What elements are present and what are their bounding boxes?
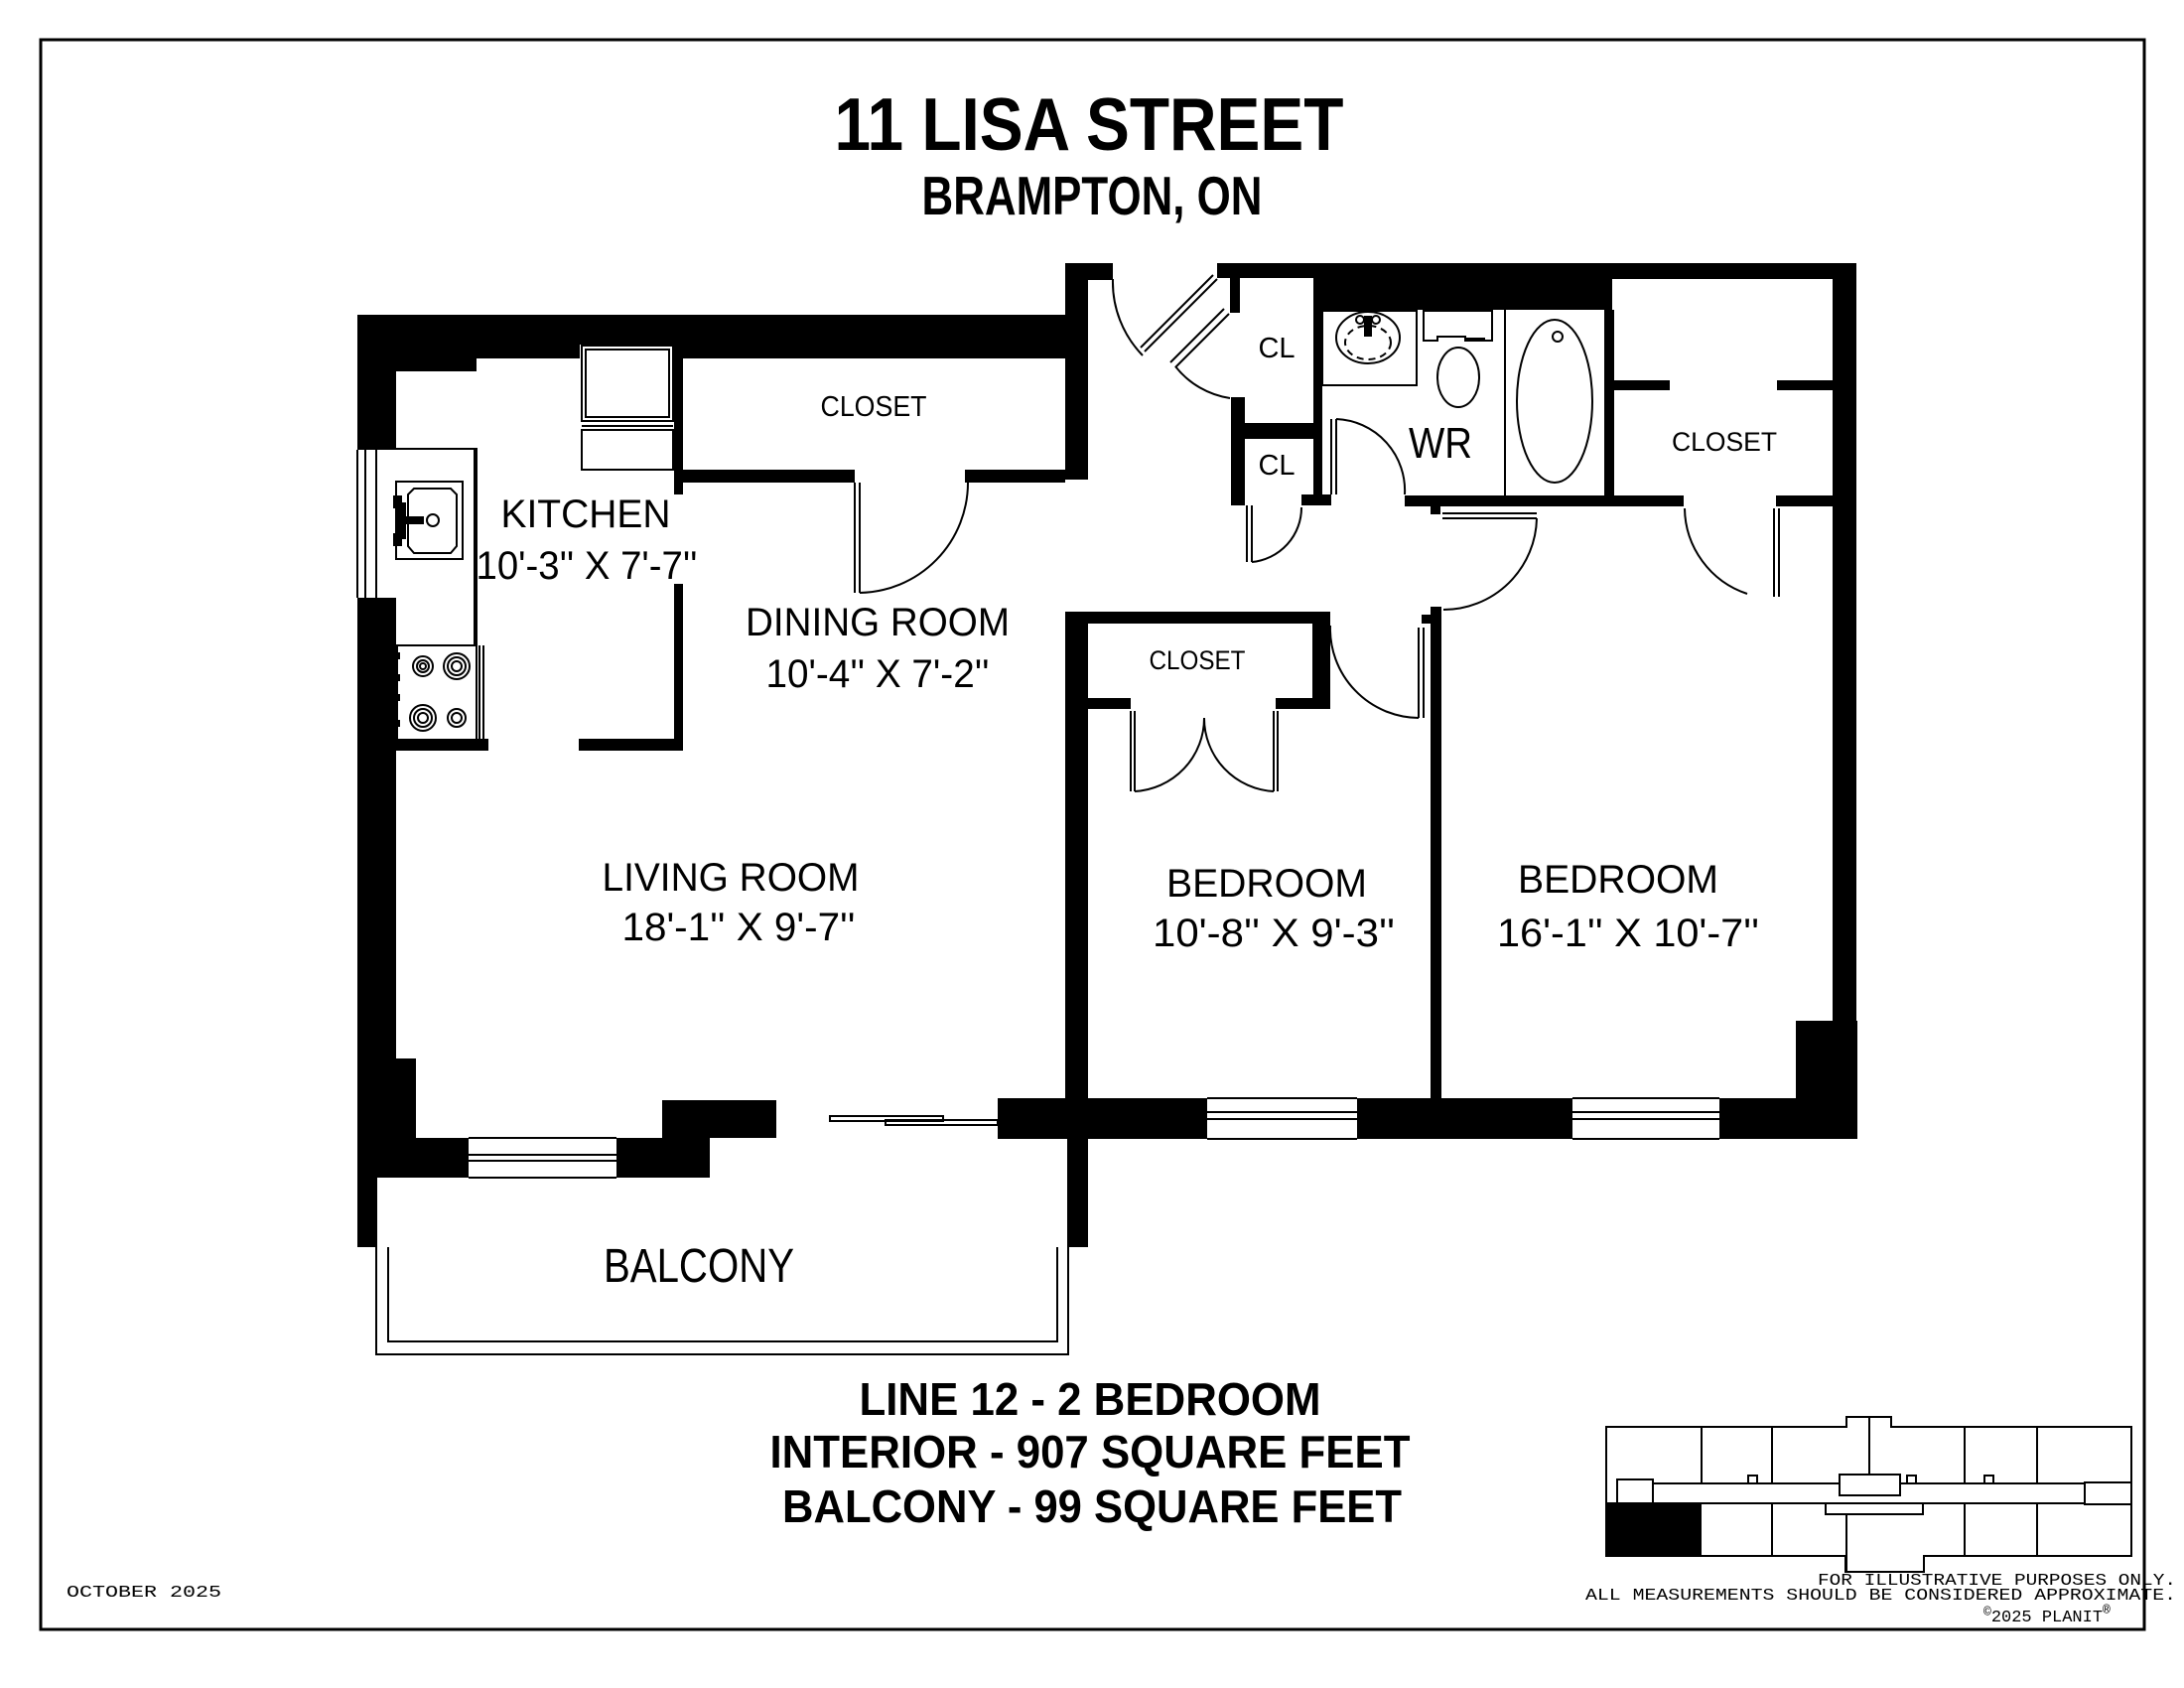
svg-text:BRAMPTON, ON: BRAMPTON, ON [922,165,1263,226]
svg-text:KITCHEN: KITCHEN [501,492,671,536]
svg-text:16'-1'' X 10'-7'': 16'-1'' X 10'-7'' [1497,912,1759,955]
svg-text:BEDROOM: BEDROOM [1518,858,1718,902]
svg-text:OCTOBER 2025: OCTOBER 2025 [67,1584,221,1603]
svg-text:10'-4'' X 7'-2'': 10'-4'' X 7'-2'' [766,652,990,696]
svg-text:10'-3'' X 7'-7'': 10'-3'' X 7'-7'' [477,544,698,588]
svg-text:CLOSET: CLOSET [1150,645,1246,675]
svg-text:LINE 12 - 2 BEDROOM: LINE 12 - 2 BEDROOM [860,1373,1321,1425]
svg-text:10'-8'' X 9'-3'': 10'-8'' X 9'-3'' [1153,912,1395,955]
svg-text:DINING ROOM: DINING ROOM [746,601,1010,644]
svg-text:11 LISA STREET: 11 LISA STREET [835,82,1344,166]
svg-text:LIVING ROOM: LIVING ROOM [603,856,860,900]
svg-text:CL: CL [1258,450,1295,482]
svg-text:ALL MEASUREMENTS SHOULD BE CON: ALL MEASUREMENTS SHOULD BE CONSIDERED AP… [1585,1587,2176,1606]
svg-text:CLOSET: CLOSET [1672,427,1777,457]
svg-text:INTERIOR - 907 SQUARE FEET: INTERIOR - 907 SQUARE FEET [770,1426,1411,1477]
svg-text:WR: WR [1409,419,1472,468]
svg-text:BALCONY - 99 SQUARE FEET: BALCONY - 99 SQUARE FEET [782,1480,1402,1532]
svg-text:CLOSET: CLOSET [821,391,927,423]
svg-text:BEDROOM: BEDROOM [1166,862,1367,906]
svg-text:CL: CL [1258,333,1295,364]
svg-text:BALCONY: BALCONY [604,1240,794,1293]
svg-text:18'-1'' X 9'-7'': 18'-1'' X 9'-7'' [622,906,856,949]
